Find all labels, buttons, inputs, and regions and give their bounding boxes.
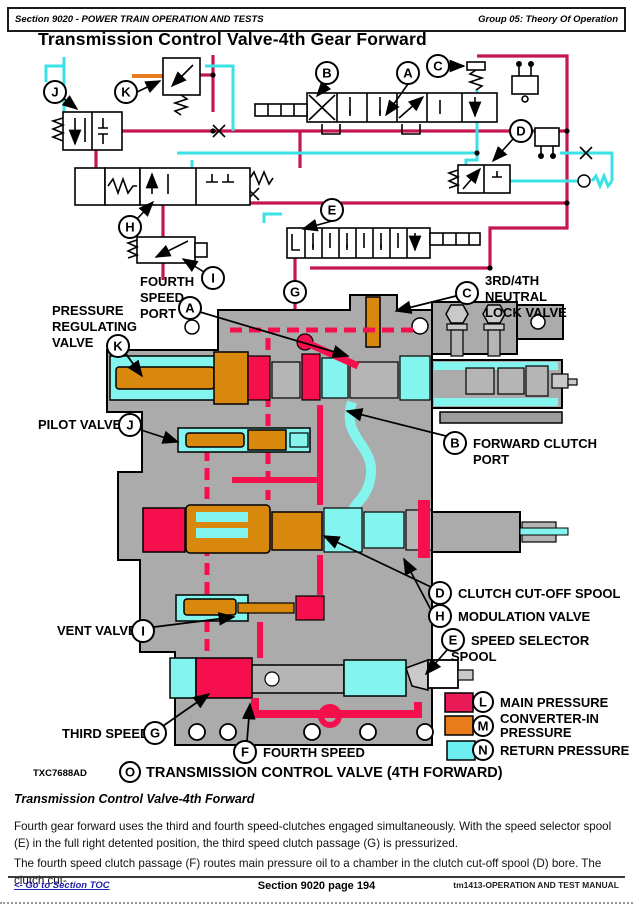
- label-text: LOCK VALVE: [485, 305, 567, 320]
- label-text: FOURTH: [140, 274, 194, 289]
- legend-swatch-main: [445, 693, 473, 712]
- label-text: NEUTRAL: [485, 289, 547, 304]
- label-pilot-valve: PILOT VALVE J: [38, 414, 141, 436]
- diagram-caption: O TRANSMISSION CONTROL VALVE (4TH FORWAR…: [120, 762, 503, 782]
- manual-name: tm1413-OPERATION AND TEST MANUAL: [453, 880, 619, 890]
- label-text: PORT: [473, 452, 509, 467]
- legend-row-return-pressure: N RETURN PRESSURE: [447, 740, 630, 760]
- manual-page: Section 9020 - POWER TRAIN OPERATION AND…: [0, 0, 633, 909]
- callout-a-schematic: A: [403, 66, 413, 81]
- label-text: VALVE: [52, 335, 94, 350]
- footer: <- Go to Section TOC Section 9020 page 1…: [14, 880, 619, 891]
- callout-o-caption: O: [125, 765, 135, 780]
- page-bottom-dotted-line: [0, 902, 633, 904]
- label-fourth-speed: F FOURTH SPEED: [234, 741, 365, 763]
- label-text: SPEED: [140, 290, 184, 305]
- callout-e-body: E: [449, 633, 458, 648]
- callout-g-body: G: [150, 726, 160, 741]
- callout-d-schematic: D: [516, 124, 525, 139]
- legend-letter-m: M: [478, 719, 489, 734]
- legend-letter-n: N: [478, 743, 487, 758]
- label-pressure-regulating-valve: PRESSURE REGULATING VALVE K: [52, 303, 137, 357]
- header-section-text: Section 9020 - POWER TRAIN OPERATION AND…: [15, 14, 264, 25]
- label-clutch-cutoff-spool: D CLUTCH CUT-OFF SPOOL: [429, 582, 621, 604]
- label-forward-clutch-port: B FORWARD CLUTCH PORT: [444, 432, 597, 467]
- header-group-text: Group 05: Theory Of Operation: [478, 14, 618, 25]
- label-text: THIRD SPEED: [62, 726, 149, 741]
- label-text: VENT VALVE: [57, 623, 137, 638]
- pressure-legend: L MAIN PRESSURE M CONVERTER-IN PRESSURE …: [445, 692, 630, 760]
- callout-d-body: D: [435, 586, 444, 601]
- figure-code: TXC7688AD: [33, 768, 87, 779]
- legend-swatch-converter: [445, 716, 473, 735]
- label-third-speed: THIRD SPEED G: [62, 722, 166, 744]
- check-valve-symbol: [578, 175, 590, 187]
- legend-label: RETURN PRESSURE: [500, 743, 630, 758]
- callout-f-body: F: [241, 745, 249, 760]
- label-fourth-speed-port: FOURTH SPEED PORT A: [140, 274, 201, 321]
- callout-k-body: K: [113, 339, 123, 354]
- pilot-valve-bore: [178, 428, 310, 452]
- label-text: FORWARD CLUTCH: [473, 436, 597, 451]
- body-bore-hole: [412, 318, 428, 334]
- legend-row-main-pressure: L MAIN PRESSURE: [445, 692, 609, 712]
- body-bore-hole: [185, 320, 199, 334]
- modulation-bore: [143, 500, 568, 558]
- callout-a-body: A: [185, 301, 195, 316]
- callout-g-schematic: G: [290, 285, 300, 300]
- callout-k-schematic: K: [121, 85, 131, 100]
- callout-i-body: I: [141, 624, 145, 639]
- label-text: 3RD/4TH: [485, 273, 539, 288]
- callout-c-body: C: [462, 286, 472, 301]
- label-text: PRESSURE: [52, 303, 124, 318]
- label-text: PILOT VALVE: [38, 417, 122, 432]
- label-speed-selector-spool: E SPEED SELECTOR SPOOL: [442, 629, 590, 664]
- label-text: PORT: [140, 306, 176, 321]
- paragraph: Fourth gear forward uses the third and f…: [14, 818, 623, 853]
- callout-i-schematic: I: [211, 271, 215, 286]
- page-title: Transmission Control Valve-4th Gear Forw…: [38, 29, 427, 50]
- label-vent-valve: VENT VALVE I: [57, 620, 154, 642]
- label-modulation-valve: H MODULATION VALVE: [429, 605, 590, 627]
- label-text: FOURTH SPEED: [263, 745, 365, 760]
- callout-c-schematic: C: [433, 59, 443, 74]
- callout-b-schematic: B: [322, 66, 331, 81]
- forward-clutch-bore: [432, 360, 577, 423]
- label-text: MODULATION VALVE: [458, 609, 590, 624]
- legend-letter-l: L: [479, 695, 487, 710]
- section-heading: Transmission Control Valve-4th Forward: [14, 792, 254, 806]
- footer-divider: [8, 876, 625, 878]
- legend-row-converter-in: M CONVERTER-IN PRESSURE: [445, 711, 599, 740]
- legend-label: PRESSURE: [500, 725, 572, 740]
- valve-body-cross-section: [107, 295, 577, 745]
- callout-j-schematic: J: [51, 85, 58, 100]
- callout-h-body: H: [435, 609, 444, 624]
- legend-label: MAIN PRESSURE: [500, 695, 609, 710]
- neutral-lock-spool: [366, 297, 380, 347]
- callout-j-body: J: [126, 418, 133, 433]
- label-text: SPEED SELECTOR: [471, 633, 590, 648]
- hydraulic-diagram: J K B A C D H I E: [0, 50, 633, 788]
- label-text: SPOOL: [451, 649, 497, 664]
- callout-e-schematic: E: [328, 203, 337, 218]
- label-text: CLUTCH CUT-OFF SPOOL: [458, 586, 621, 601]
- callout-b-body: B: [450, 436, 459, 451]
- label-text: REGULATING: [52, 319, 137, 334]
- caption-text: TRANSMISSION CONTROL VALVE (4TH FORWARD): [146, 765, 503, 781]
- callout-h-schematic: H: [125, 220, 134, 235]
- legend-swatch-return: [447, 741, 475, 760]
- legend-label: CONVERTER-IN: [500, 711, 599, 726]
